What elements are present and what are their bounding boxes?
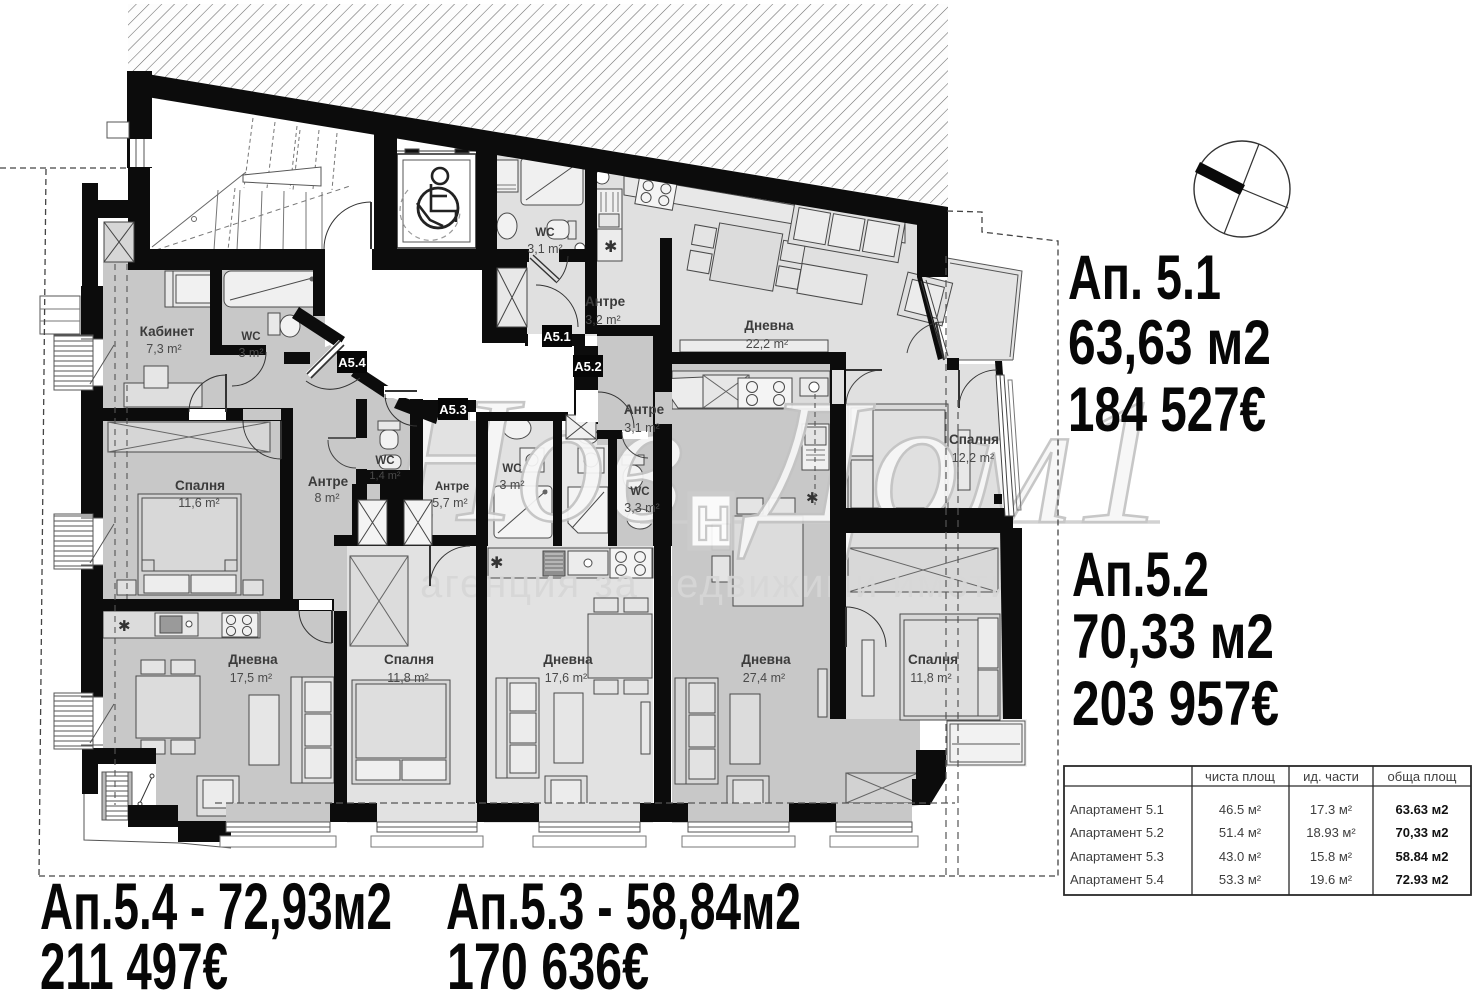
svg-text:8 m²: 8 m² (315, 491, 340, 505)
svg-text:63,63 м2: 63,63 м2 (1068, 308, 1271, 378)
svg-text:ид. части: ид. части (1303, 769, 1359, 784)
svg-text:17.3 м²: 17.3 м² (1310, 802, 1353, 817)
svg-text:3,1 m²: 3,1 m² (527, 242, 562, 256)
svg-text:51.4 м²: 51.4 м² (1219, 825, 1262, 840)
svg-text:WC: WC (630, 486, 649, 498)
svg-text:A5.1: A5.1 (543, 329, 570, 344)
svg-text:Дневна: Дневна (228, 652, 278, 667)
svg-text:WC: WC (535, 227, 554, 239)
svg-text:3,2 m²: 3,2 m² (585, 313, 620, 327)
svg-text:чиста площ: чиста площ (1205, 769, 1275, 784)
svg-text:22,2 m²: 22,2 m² (746, 337, 788, 351)
svg-text:43.0 м²: 43.0 м² (1219, 849, 1262, 864)
svg-text:17,6 m²: 17,6 m² (545, 671, 587, 685)
svg-text:Антре: Антре (308, 474, 349, 489)
svg-text:Кабинет: Кабинет (140, 324, 195, 339)
svg-text:63.63 м2: 63.63 м2 (1396, 802, 1449, 817)
svg-text:Ап. 5.1: Ап. 5.1 (1068, 243, 1221, 313)
svg-text:1,4 m²: 1,4 m² (369, 470, 401, 482)
svg-text:H: H (696, 498, 731, 551)
svg-text:Антре: Антре (585, 294, 626, 309)
svg-text:3 m²: 3 m² (239, 346, 264, 360)
svg-text:11,8 m²: 11,8 m² (387, 671, 428, 685)
svg-text:7,3 m²: 7,3 m² (146, 342, 181, 356)
svg-text:Дневна: Дневна (741, 652, 791, 667)
svg-text:19.6 м²: 19.6 м² (1310, 872, 1353, 887)
svg-text:3,1 m²: 3,1 m² (624, 421, 659, 435)
svg-text:Дневна: Дневна (744, 318, 794, 333)
svg-text:184 527€: 184 527€ (1068, 375, 1266, 445)
svg-text:Спалня: Спалня (384, 652, 434, 667)
svg-text:Апартамент 5.1: Апартамент 5.1 (1070, 802, 1164, 817)
svg-text:A5.4: A5.4 (338, 355, 366, 370)
svg-text:Антре: Антре (624, 402, 665, 417)
svg-text:203 957€: 203 957€ (1072, 669, 1279, 739)
svg-text:15.8 м²: 15.8 м² (1310, 849, 1353, 864)
svg-text:46.5 м²: 46.5 м² (1219, 802, 1262, 817)
svg-text:Антре: Антре (435, 481, 469, 493)
svg-text:агенция за недвижими имоти: агенция за недвижими имоти (420, 562, 1014, 606)
svg-text:70,33 м2: 70,33 м2 (1396, 825, 1449, 840)
svg-text:27,4 m²: 27,4 m² (743, 671, 785, 685)
svg-text:Спалня: Спалня (949, 432, 999, 447)
svg-text:Ап.5.2: Ап.5.2 (1072, 540, 1209, 610)
svg-text:170 636€: 170 636€ (447, 929, 649, 1000)
svg-text:WC: WC (502, 463, 521, 475)
svg-text:Спалня: Спалня (175, 478, 225, 493)
svg-text:58.84 м2: 58.84 м2 (1396, 849, 1449, 864)
svg-text:Спалня: Спалня (908, 652, 958, 667)
svg-text:70,33 м2: 70,33 м2 (1072, 602, 1274, 672)
svg-text:обща площ: обща площ (1388, 769, 1457, 784)
svg-text:WC: WC (375, 455, 394, 467)
svg-text:72.93 м2: 72.93 м2 (1396, 872, 1449, 887)
svg-text:WC: WC (241, 331, 260, 343)
svg-text:A5.2: A5.2 (574, 359, 601, 374)
svg-text:Апартамент 5.4: Апартамент 5.4 (1070, 872, 1164, 887)
svg-text:A5.3: A5.3 (439, 402, 466, 417)
svg-text:Апартамент 5.3: Апартамент 5.3 (1070, 849, 1164, 864)
svg-text:✱: ✱ (118, 618, 131, 635)
svg-text:18.93 м²: 18.93 м² (1306, 825, 1356, 840)
svg-text:53.3 м²: 53.3 м² (1219, 872, 1262, 887)
svg-text:Апартамент 5.2: Апартамент 5.2 (1070, 825, 1164, 840)
svg-text:211 497€: 211 497€ (40, 929, 228, 1000)
svg-text:5,7 m²: 5,7 m² (432, 496, 467, 510)
svg-text:✱: ✱ (604, 239, 617, 256)
svg-text:17,5 m²: 17,5 m² (230, 671, 272, 685)
svg-text:3 m²: 3 m² (500, 478, 525, 492)
svg-text:Дневна: Дневна (543, 652, 593, 667)
svg-text:11,6 m²: 11,6 m² (178, 496, 219, 510)
svg-text:3,3 m²: 3,3 m² (624, 501, 659, 515)
